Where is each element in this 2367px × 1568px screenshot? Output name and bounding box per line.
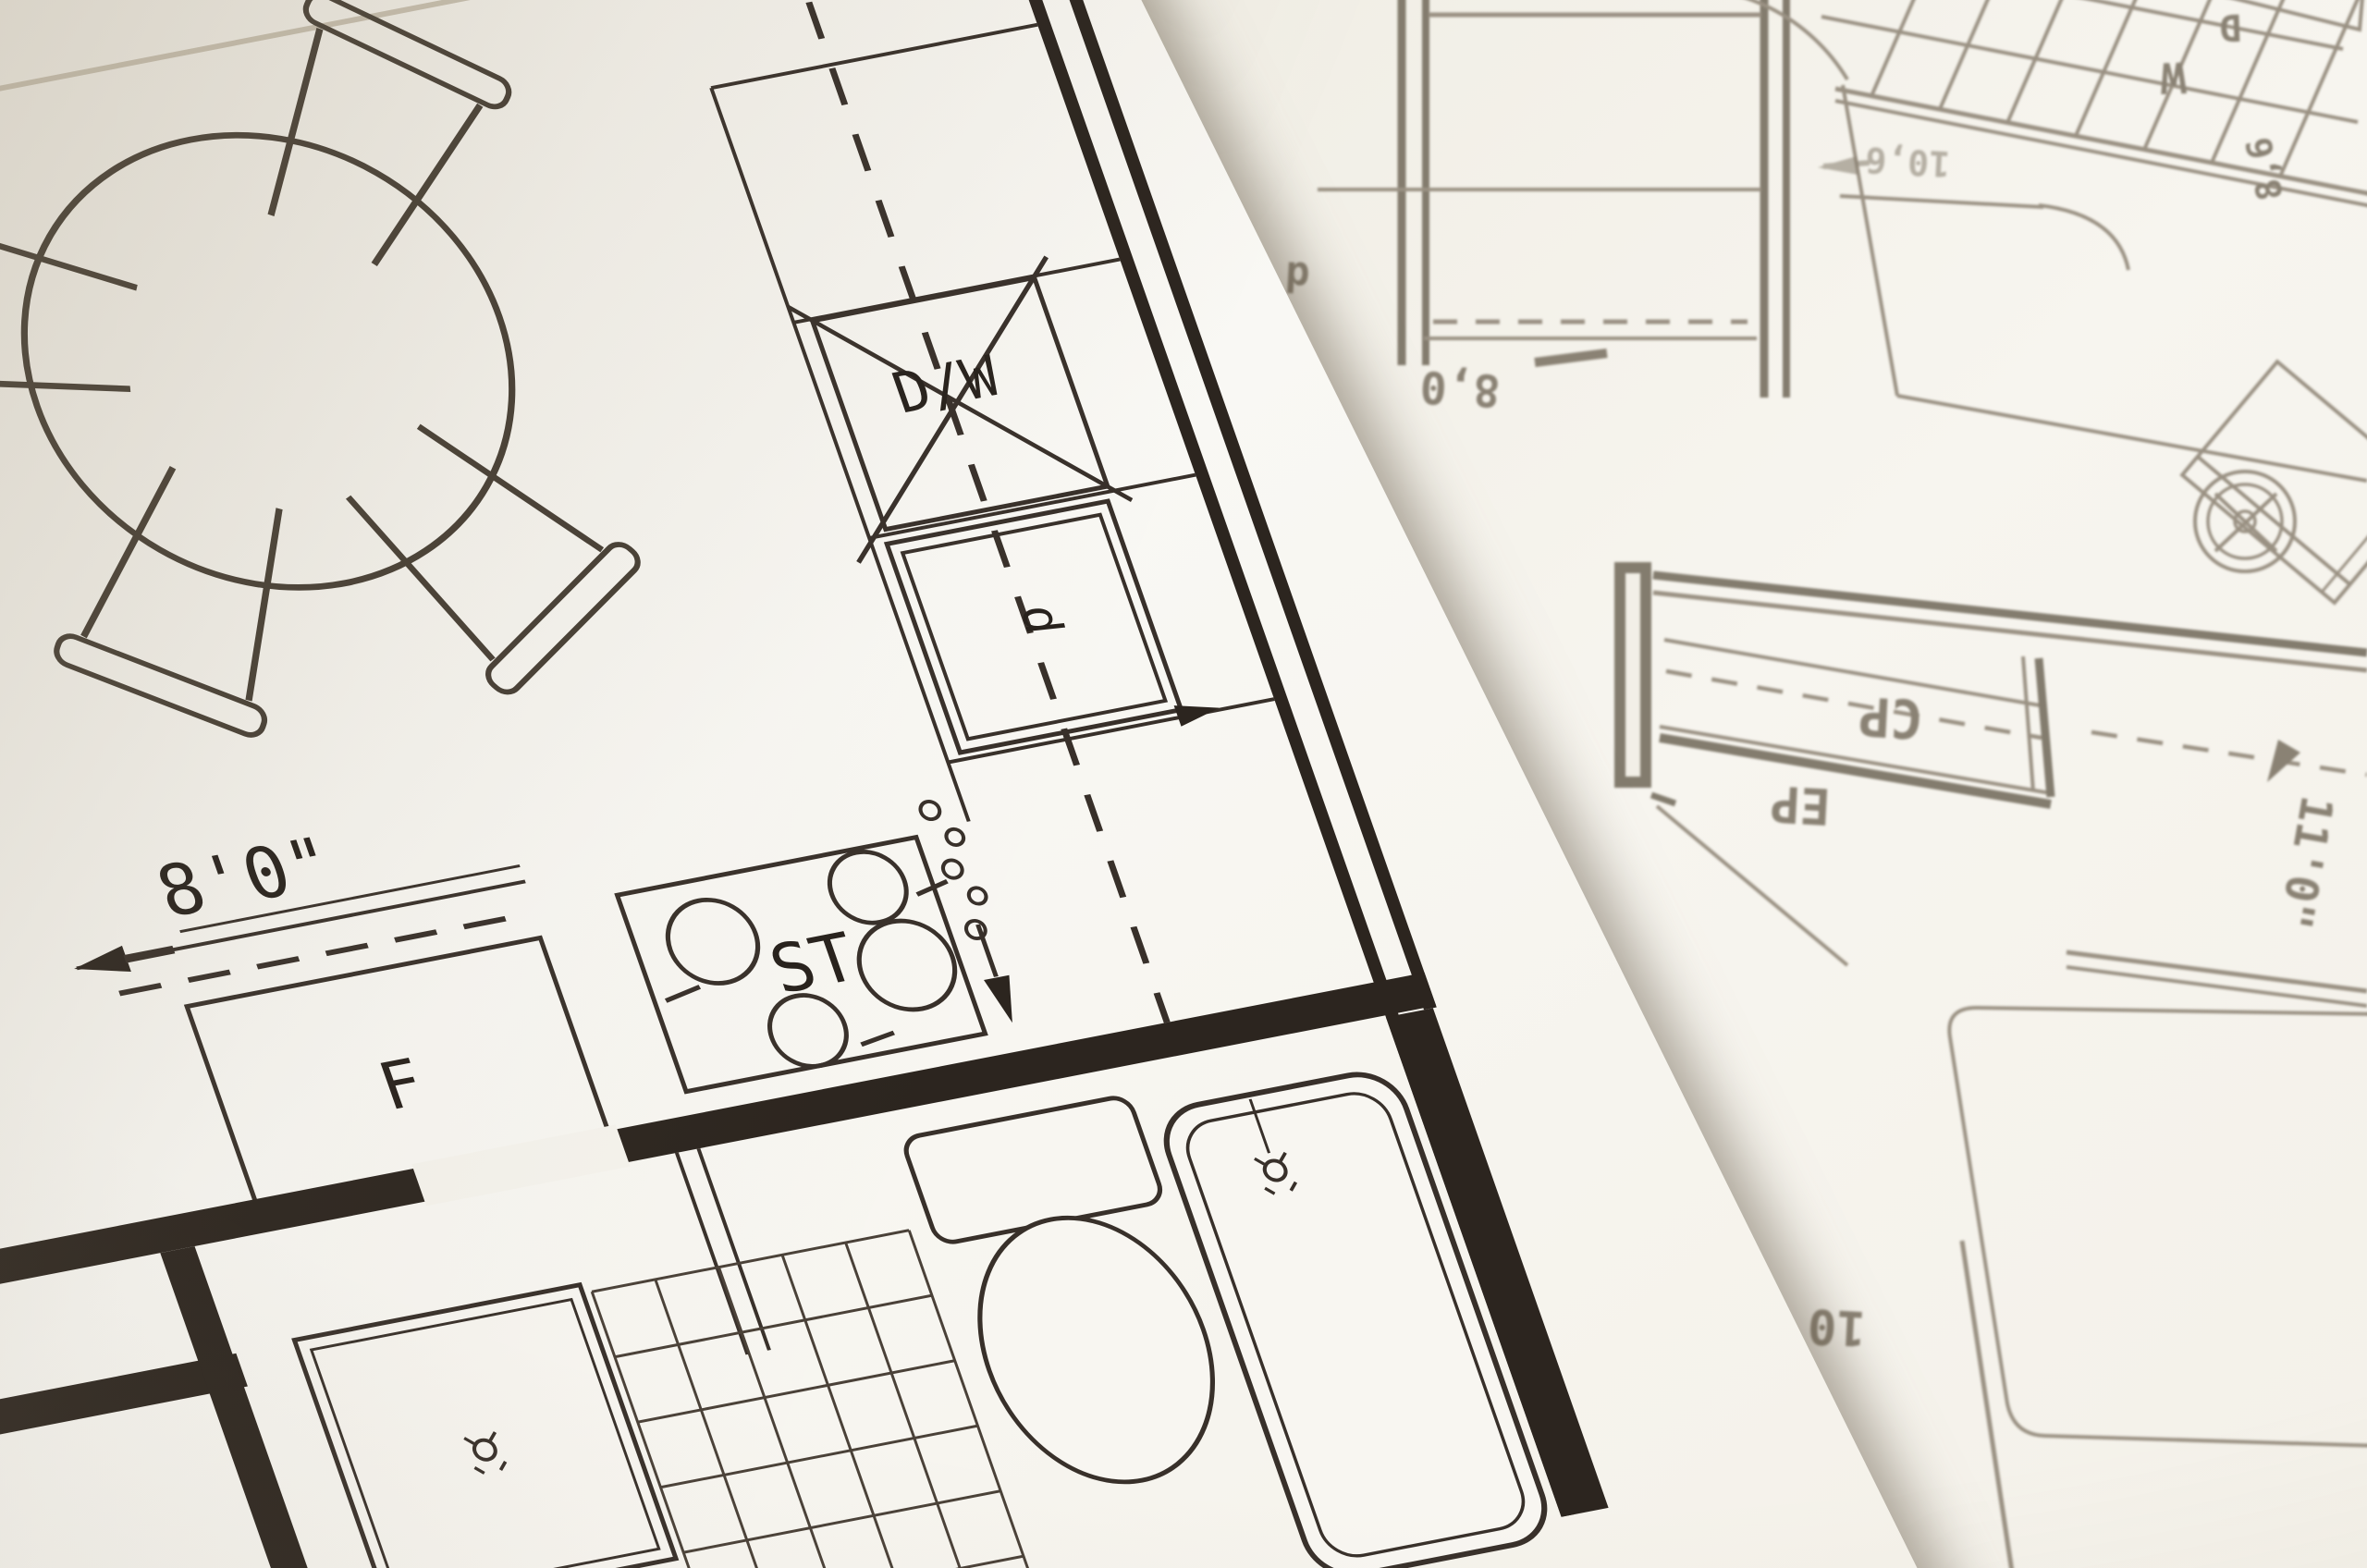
blueprint-photo: d 8,0 [0,0,2367,1568]
sink-label: d [1009,603,1074,638]
door-label: D [2219,6,2243,49]
washer-label: W [2159,53,2187,104]
blueprint-photo-scene: d 8,0 [0,0,2367,1568]
under-dim-10-6-label: 10,6 [1864,140,1951,185]
under-dim-8-0-label: 8,0 [1418,361,1502,416]
under-room-label: d [1284,251,1311,300]
closet-label: CP [1857,684,1924,751]
entry-label: EP [1769,774,1832,835]
